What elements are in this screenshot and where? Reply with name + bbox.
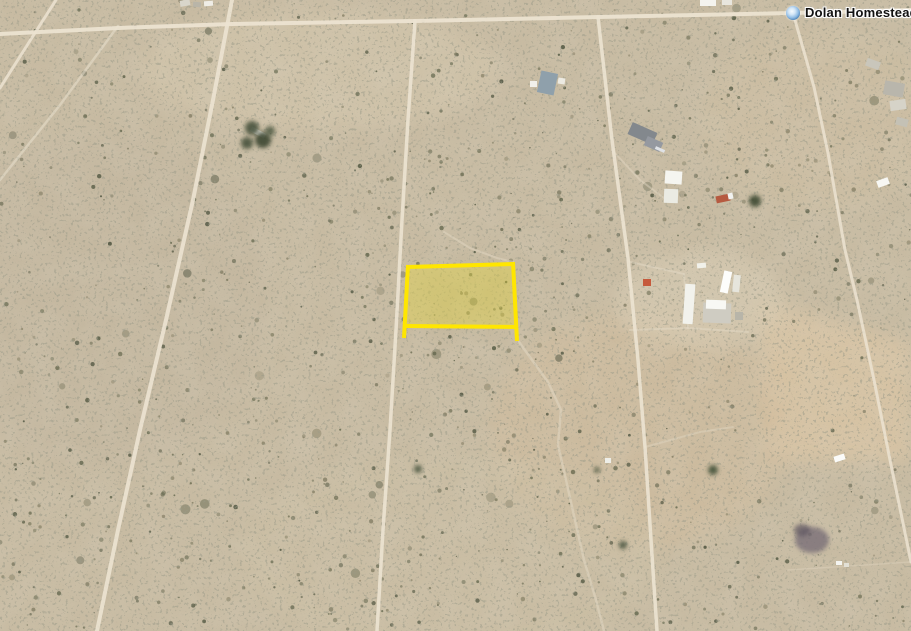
bush-tree-3 — [414, 465, 422, 473]
homestead-tree-4 — [265, 126, 275, 136]
ground-mark — [794, 524, 810, 536]
placemark-icon[interactable] — [786, 6, 800, 20]
parcel-fill[interactable] — [406, 263, 517, 326]
compound-white-roof — [706, 300, 726, 310]
white-building-2 — [664, 189, 678, 203]
bush-tree-2 — [619, 541, 627, 549]
top-edge-building-2 — [722, 0, 732, 5]
homestead-tree-1 — [245, 121, 259, 135]
debris-top-left-2 — [193, 2, 201, 8]
farm-shed-left — [530, 81, 537, 87]
parcel-edge-bottom — [405, 326, 517, 327]
satellite-map[interactable]: Dolan Homestead — [0, 0, 911, 631]
white-speck-bottom — [605, 458, 611, 463]
farm-shed-right — [558, 78, 566, 85]
placemark-label: Dolan Homestead — [805, 5, 911, 20]
bush-tree-4 — [594, 467, 600, 473]
placemark-dolan-homestead[interactable]: Dolan Homestead — [786, 5, 911, 20]
compound-red-item — [643, 279, 651, 286]
lone-tree-right — [749, 195, 761, 207]
compound-small-white — [697, 263, 706, 269]
satellite-imagery — [0, 0, 911, 631]
top-edge-building-1 — [700, 0, 716, 6]
compound-shed — [735, 312, 743, 320]
white-building-1 — [665, 170, 683, 184]
bush-tree-1 — [708, 465, 718, 475]
debris-top-left-3 — [204, 1, 213, 7]
homestead-tree-3 — [241, 137, 253, 149]
white-pair-bottom-2 — [844, 563, 849, 567]
white-pair-bottom-1 — [836, 561, 842, 565]
